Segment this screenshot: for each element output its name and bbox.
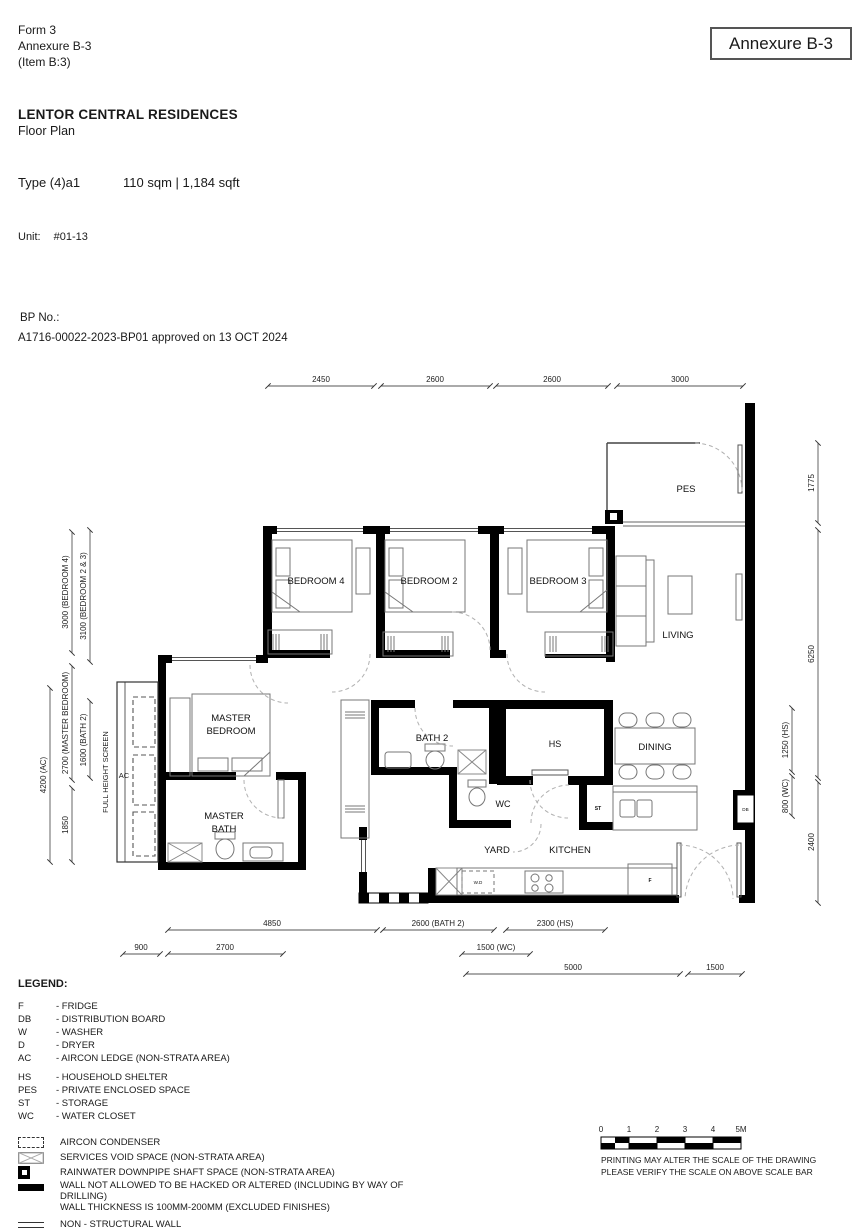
legend-abbr: DB (18, 1013, 56, 1026)
dim-bottom-4850: 4850 (263, 919, 281, 928)
dim-left-master: 2700 (MASTER BEDROOM) (61, 672, 70, 775)
dim-bottom-bath2: 2600 (BATH 2) (412, 919, 465, 928)
legend-row-f: F- FRIDGE (18, 1000, 438, 1013)
dim-bottom-hs: 2300 (HS) (537, 919, 574, 928)
legend-row-db: DB- DISTRIBUTION BOARD (18, 1013, 438, 1026)
kitchen-counter-top (613, 786, 697, 830)
console (736, 574, 742, 620)
services-void-yard (436, 868, 462, 895)
label-hs: HS (549, 739, 562, 749)
dim-left-ac: 4200 (AC) (39, 756, 48, 793)
dim-right-wc: 800 (WC) (781, 779, 790, 814)
pes-door-arc (694, 443, 742, 491)
legend-symbol-label2: WALL THICKNESS IS 100MM-200MM (EXCLUDED … (60, 1202, 438, 1213)
dim-top-2: 2600 (426, 375, 444, 384)
legend-abbr: ST (18, 1097, 56, 1110)
label-st: ST (595, 806, 601, 812)
room-labels: PES LIVING DINING BEDROOM 4 BEDROOM 2 BE… (101, 484, 749, 885)
legend-abbr: AC (18, 1052, 56, 1065)
furniture (170, 445, 754, 897)
scale-tick-1: 1 (627, 1125, 632, 1134)
legend-row-st: ST- STORAGE (18, 1097, 438, 1110)
kitchen-door-arc (531, 785, 569, 823)
legend-title: LEGEND: (18, 978, 438, 990)
services-void-bath2 (458, 750, 486, 774)
services-void-symbol-icon (18, 1152, 60, 1164)
dim-left-bedroom4: 3000 (BEDROOM 4) (61, 555, 70, 629)
scale-note-1: PRINTING MAY ALTER THE SCALE OF THE DRAW… (601, 1155, 816, 1165)
legend-desc: - WASHER (56, 1026, 103, 1039)
legend-desc: - WATER CLOSET (56, 1110, 136, 1123)
label-master-2: BEDROOM (206, 726, 255, 737)
downpipe-symbol-icon (18, 1166, 60, 1179)
label-bedroom3: BEDROOM 3 (529, 576, 586, 587)
coffee-table (668, 576, 692, 614)
legend-row-w: W- WASHER (18, 1026, 438, 1039)
entrance-door-arc-left (679, 845, 733, 899)
label-bedroom4: BEDROOM 4 (287, 576, 344, 587)
dim-top-4: 3000 (671, 375, 689, 384)
legend-symbol-label: WALL NOT ALLOWED TO BE HACKED OR ALTERED… (60, 1180, 438, 1202)
label-yard: YARD (484, 845, 510, 856)
label-wc: WC (496, 799, 511, 809)
kitchen-counter-bottom (457, 864, 677, 895)
scale-tick-4: 4 (711, 1125, 716, 1134)
legend-symbol-nonstructural-wall: NON - STRUCTURAL WALL (18, 1217, 438, 1232)
legend-desc: - AIRCON LEDGE (NON-STRATA AREA) (56, 1052, 230, 1065)
door-swings (244, 443, 742, 899)
dim-bottom-1500: 1500 (706, 963, 724, 972)
legend-abbr: D (18, 1039, 56, 1052)
label-wd: W.D (474, 880, 483, 885)
label-pes: PES (676, 484, 695, 495)
entrance-door-arc-right (685, 845, 739, 899)
bed4-door-arc (332, 654, 370, 692)
legend-desc: - STORAGE (56, 1097, 108, 1110)
label-kitchen: KITCHEN (549, 845, 591, 856)
legend-row-ac: AC- AIRCON LEDGE (NON-STRATA AREA) (18, 1052, 438, 1065)
masterbath-door-arc (244, 780, 282, 818)
legend-row-hs: HS- HOUSEHOLD SHELTER (18, 1071, 438, 1084)
legend-desc: - PRIVATE ENCLOSED SPACE (56, 1084, 190, 1097)
label-full-height-screen: FULL HEIGHT SCREEN (101, 731, 110, 813)
legend-desc: - DISTRIBUTION BOARD (56, 1013, 165, 1026)
dim-bottom-900: 900 (134, 943, 148, 952)
dim-left-1850: 1850 (61, 816, 70, 834)
stove (525, 871, 563, 893)
dim-right-1775: 1775 (807, 474, 816, 492)
dim-bottom-wc: 1500 (WC) (477, 943, 516, 952)
dim-bottom-2700: 2700 (216, 943, 234, 952)
legend-symbol-label: RAINWATER DOWNPIPE SHAFT SPACE (NON-STRA… (60, 1167, 335, 1178)
dim-right-hs: 1250 (HS) (781, 721, 790, 758)
sofa (616, 556, 654, 646)
aircon-condenser-symbol-icon (18, 1137, 60, 1148)
dim-left-bath2: 1600 (BATH 2) (79, 713, 88, 766)
legend-row-pes: PES- PRIVATE ENCLOSED SPACE (18, 1084, 438, 1097)
legend-symbol-label: SERVICES VOID SPACE (NON-STRATA AREA) (60, 1152, 265, 1163)
master-door-arc (250, 665, 288, 703)
legend-abbr: W (18, 1026, 56, 1039)
label-master-1: MASTER (211, 713, 251, 724)
label-bath2: BATH 2 (416, 733, 449, 744)
legend-symbol-label: AIRCON CONDENSER (60, 1137, 160, 1148)
label-bedroom2: BEDROOM 2 (400, 576, 457, 587)
label-living: LIVING (662, 630, 693, 641)
scale-tick-2: 2 (655, 1125, 660, 1134)
legend-abbr: HS (18, 1071, 56, 1084)
legend-desc: - DRYER (56, 1039, 95, 1052)
structural-wall-symbol-icon (18, 1184, 60, 1191)
legend-symbol-structural-wall: WALL NOT ALLOWED TO BE HACKED OR ALTERED… (18, 1180, 438, 1213)
legend-row-d: D- DRYER (18, 1039, 438, 1052)
bath2-toilet (425, 744, 445, 751)
scale-tick-0: 0 (599, 1125, 604, 1134)
master-wardrobe (341, 700, 369, 838)
nonstructural-wall-symbol-icon (18, 1222, 60, 1228)
bed3-door-arc (507, 654, 545, 692)
label-fridge: F (648, 878, 651, 884)
services-void-masterbath (168, 843, 202, 862)
label-masterbath-1: MASTER (204, 811, 244, 822)
downpipe-shaft (605, 510, 623, 524)
wc-door-arc (513, 824, 541, 852)
dim-right-2400: 2400 (807, 833, 816, 851)
legend-abbr: PES (18, 1084, 56, 1097)
dim-top-1: 2450 (312, 375, 330, 384)
label-masterbath-2: BATH (212, 824, 237, 835)
legend-abbr: WC (18, 1110, 56, 1123)
scale-tick-5: 5M (735, 1125, 746, 1134)
legend-row-wc: WC- WATER CLOSET (18, 1110, 438, 1123)
dim-bottom-5000: 5000 (564, 963, 582, 972)
structural-walls (158, 403, 755, 903)
wc-toilet (468, 780, 486, 787)
bed2-door-arc (452, 612, 490, 650)
legend-symbol-services-void: SERVICES VOID SPACE (NON-STRATA AREA) (18, 1150, 438, 1165)
scale-note-2: PLEASE VERIFY THE SCALE ON ABOVE SCALE B… (601, 1167, 813, 1177)
legend-symbol-aircon-condenser: AIRCON CONDENSER (18, 1135, 438, 1150)
scale-bar: 0 1 2 3 4 5M PRINTING MAY ALTER THE SCAL… (599, 1125, 816, 1177)
legend-desc: - HOUSEHOLD SHELTER (56, 1071, 168, 1084)
legend-symbol-downpipe: RAINWATER DOWNPIPE SHAFT SPACE (NON-STRA… (18, 1165, 438, 1180)
legend-desc: - FRIDGE (56, 1000, 98, 1013)
dim-top-3: 2600 (543, 375, 561, 384)
label-dining: DINING (638, 742, 671, 753)
wardrobe-bed3 (545, 632, 613, 656)
dim-right-6250: 6250 (807, 645, 816, 663)
dim-left-bedroom23: 3100 (BEDROOM 2 & 3) (79, 552, 88, 640)
label-ac: AC (119, 771, 130, 780)
label-db: DB (742, 807, 748, 812)
legend-symbol-label: NON - STRUCTURAL WALL (60, 1219, 181, 1230)
aircon-condenser-boxes (133, 697, 155, 856)
bath2-sink (385, 752, 411, 768)
legend: LEGEND: F- FRIDGE DB- DISTRIBUTION BOARD… (18, 978, 438, 1232)
scale-tick-3: 3 (683, 1125, 688, 1134)
dimensions-bottom (123, 930, 742, 974)
hatched-strip (359, 893, 428, 903)
legend-abbr: F (18, 1000, 56, 1013)
